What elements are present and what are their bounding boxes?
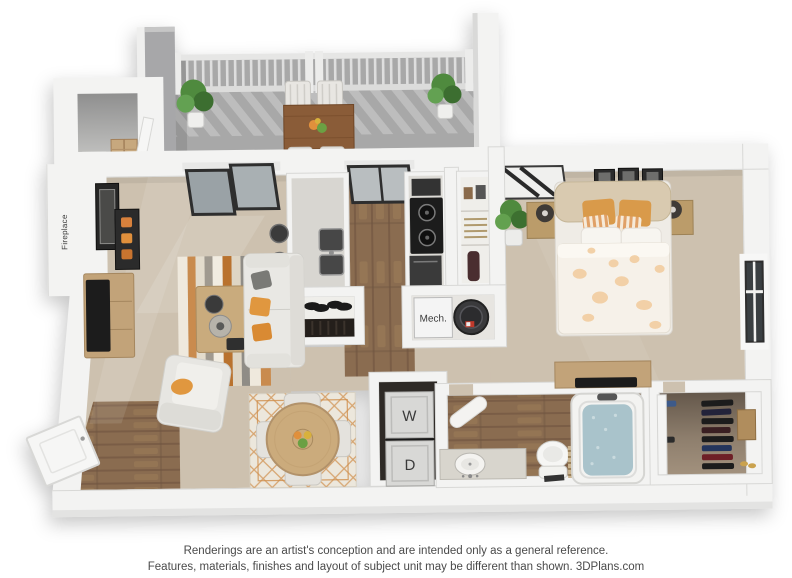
disclaimer-line2: Features, materials, finishes and layout…	[0, 560, 792, 576]
dresser	[555, 361, 651, 388]
armchair	[156, 354, 232, 434]
washer-unit: W	[385, 392, 434, 439]
tv-console	[84, 273, 135, 358]
closet-shelf	[737, 410, 755, 440]
dryer-label: D	[404, 457, 415, 474]
vanity-sink	[440, 448, 526, 479]
bottle	[467, 251, 479, 281]
bath-water	[582, 404, 633, 476]
bathroom-door-opening	[449, 384, 473, 395]
bathtub	[571, 393, 644, 484]
tablet	[226, 338, 244, 350]
balcony	[137, 13, 501, 167]
firebox	[115, 209, 140, 269]
balcony-table	[284, 105, 355, 150]
washer-label: W	[402, 408, 417, 425]
dining-table	[266, 403, 339, 476]
dryer-unit: D	[386, 441, 435, 487]
tv	[86, 280, 111, 352]
fireplace-label: Fireplace	[60, 214, 69, 250]
pillow	[251, 322, 272, 341]
kitchen-counter-right	[404, 171, 447, 292]
cooktop	[410, 197, 444, 253]
tub-faucet	[597, 393, 617, 400]
toilet	[537, 441, 569, 482]
bedroom-tv	[575, 377, 637, 388]
dining-set	[249, 393, 356, 488]
duvet	[557, 243, 670, 334]
closet-door	[657, 395, 667, 475]
floor-plan-image: Fireplace	[0, 0, 792, 578]
disclaimer-line1: Renderings are an artist's conception an…	[0, 544, 792, 560]
sofa	[243, 253, 304, 368]
disclaimer: Renderings are an artist's conception an…	[0, 544, 792, 575]
lower-appliance	[409, 255, 441, 287]
pillow	[249, 297, 271, 317]
bar-stool	[270, 224, 288, 242]
mech-closet: Mech.	[402, 285, 507, 348]
closet-door-opening	[663, 382, 685, 393]
coffee-table	[196, 286, 249, 353]
balcony-chair	[317, 81, 342, 108]
sliding-door	[182, 161, 281, 214]
bed	[555, 181, 673, 336]
balcony-chair	[285, 81, 310, 108]
microwave	[412, 178, 441, 195]
bedroom-window-right	[739, 254, 768, 350]
floor-plan: Fireplace	[0, 0, 792, 578]
water-heater	[454, 300, 488, 334]
mech-label: Mech.	[420, 313, 447, 324]
